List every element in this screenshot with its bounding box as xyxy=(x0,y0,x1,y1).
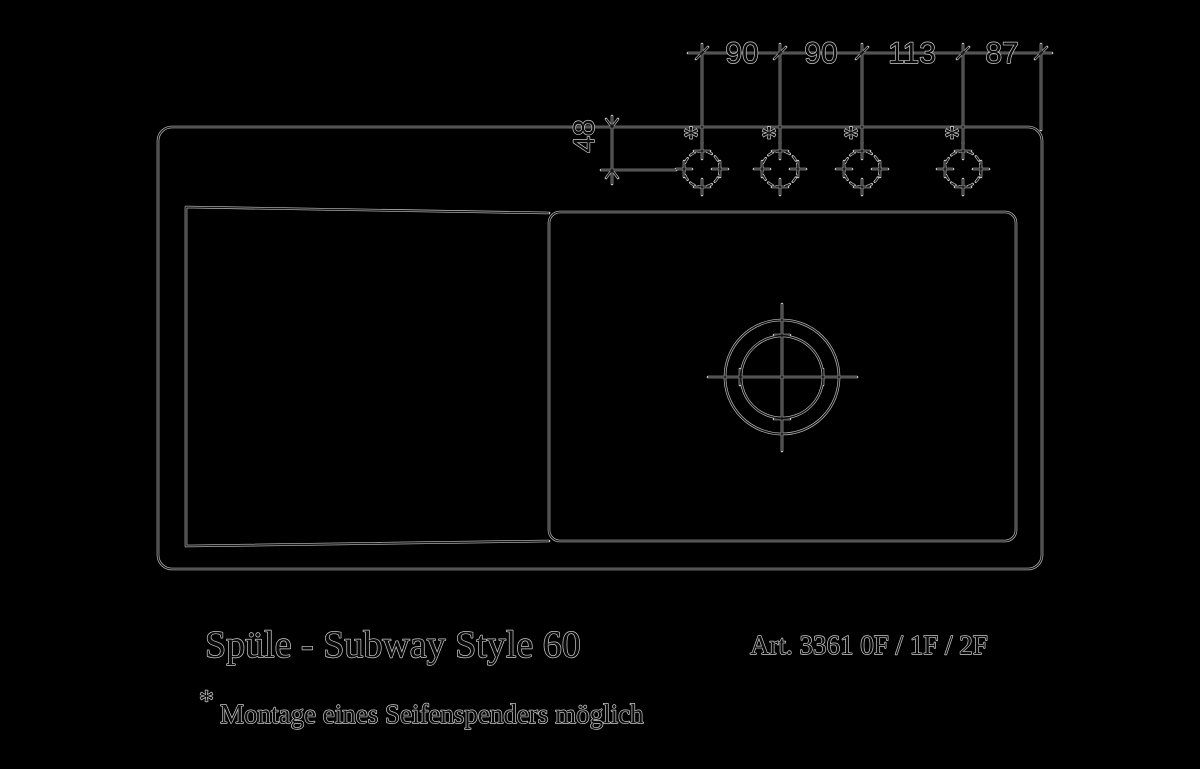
footnote-text: Montage eines Seifenspenders möglich xyxy=(220,699,644,729)
labels: 90 90 113 87 48 * * * * Spüle - Subway S… xyxy=(199,37,1019,729)
drawing-halo-layer xyxy=(158,44,1052,569)
dimension-label-90b: 90 xyxy=(804,37,837,70)
dimension-label-48: 48 xyxy=(568,119,601,152)
footnote-marker: * xyxy=(199,684,214,717)
tap-hole-marker-3: * xyxy=(843,119,859,155)
product-title: Spüle - Subway Style 60 xyxy=(205,624,581,666)
tap-hole-marker-1: * xyxy=(683,119,699,155)
sink-technical-drawing-page: 90 90 113 87 48 * * * * Spüle - Subway S… xyxy=(0,0,1200,769)
dimension-label-90a: 90 xyxy=(725,37,758,70)
dimension-label-113: 113 xyxy=(888,37,936,70)
tap-hole-marker-4: * xyxy=(944,119,960,155)
article-number: Art. 3361 0F / 1F / 2F xyxy=(750,630,988,660)
technical-drawing: 90 90 113 87 48 * * * * Spüle - Subway S… xyxy=(0,0,1200,769)
dimension-label-87: 87 xyxy=(985,37,1018,70)
tap-hole-marker-2: * xyxy=(761,119,777,155)
drawing-core-layer xyxy=(158,44,1052,569)
